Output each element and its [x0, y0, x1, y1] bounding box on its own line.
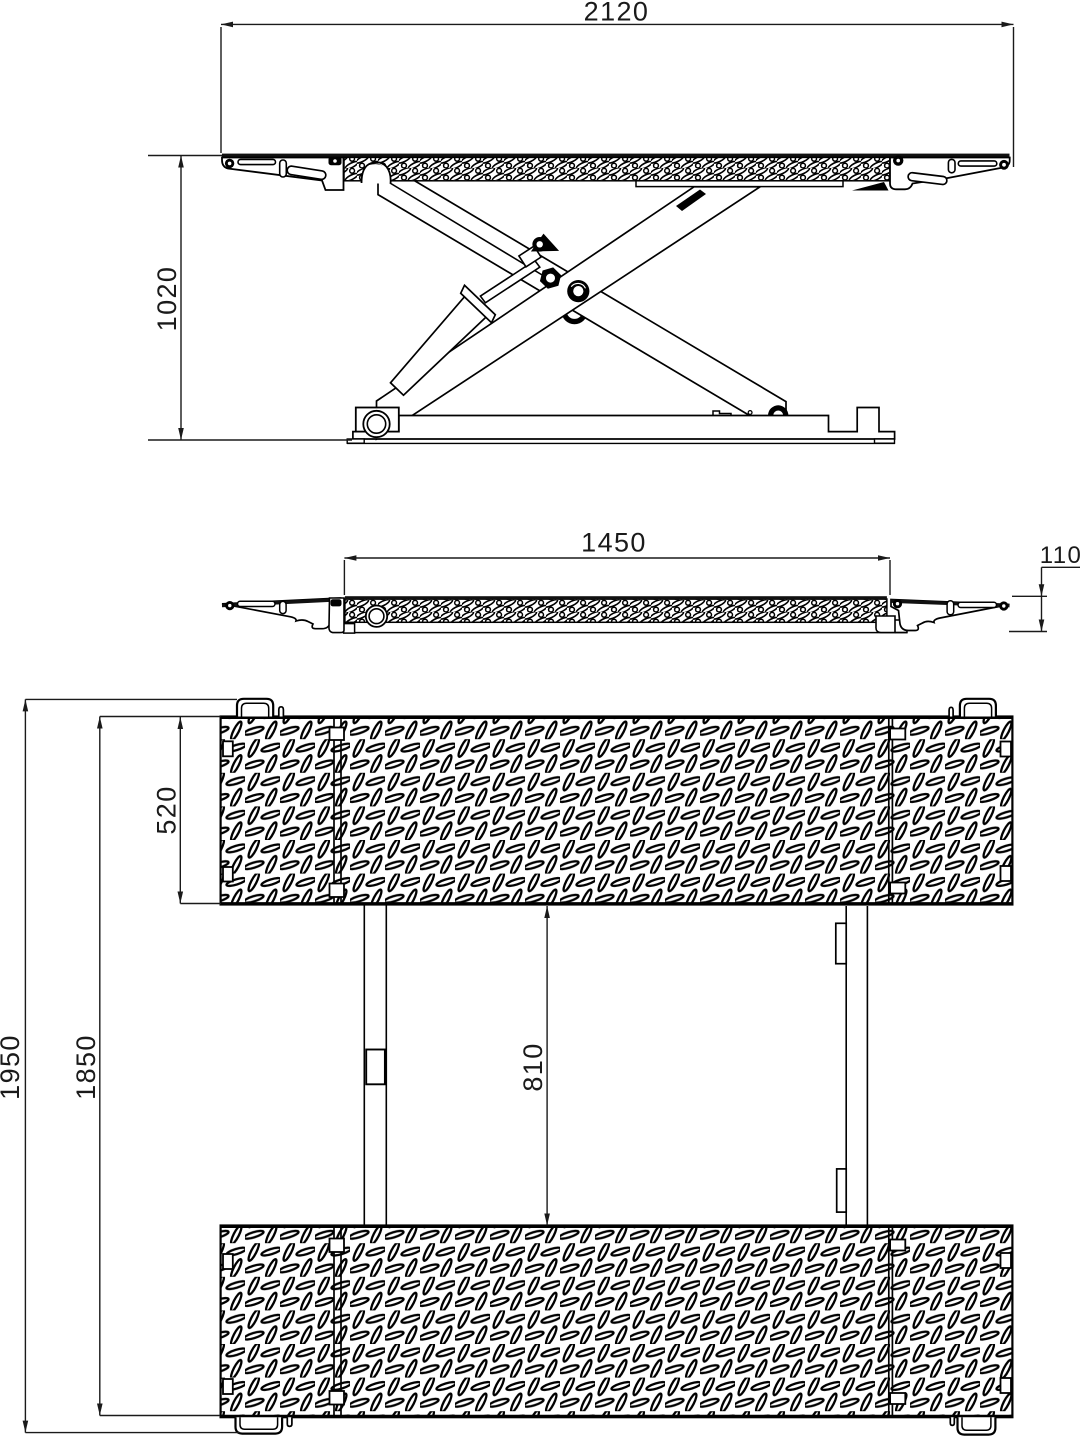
svg-text:1020: 1020: [152, 266, 182, 332]
svg-text:1450: 1450: [581, 528, 647, 558]
svg-text:810: 810: [518, 1042, 548, 1091]
svg-text:1950: 1950: [0, 1034, 25, 1100]
svg-text:110: 110: [1040, 542, 1082, 569]
svg-text:520: 520: [152, 785, 182, 834]
svg-text:1850: 1850: [71, 1034, 101, 1100]
svg-text:2120: 2120: [584, 0, 650, 27]
